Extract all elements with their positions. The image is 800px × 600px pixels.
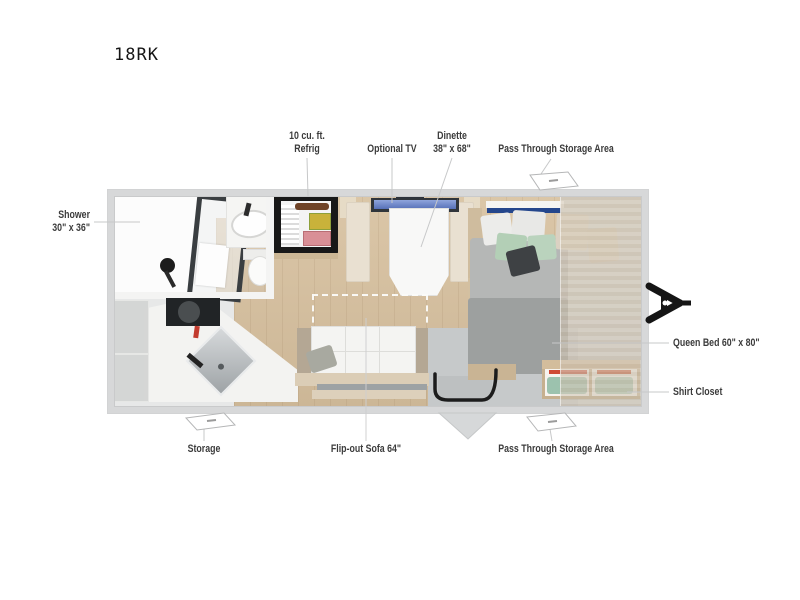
label-refrig: 10 cu. ft. Refrig xyxy=(259,130,355,155)
pass-through-door-icon-bottom xyxy=(527,413,576,431)
label-refrig-line2: Refrig xyxy=(259,143,355,156)
label-pass-through-top-text: Pass Through Storage Area xyxy=(492,143,620,156)
floorplan-diagram xyxy=(108,190,648,413)
label-pass-through-bottom: Pass Through Storage Area xyxy=(492,443,620,456)
trailer-hitch-icon xyxy=(649,286,691,320)
label-queen-bed-text: Queen Bed 60" x 80" xyxy=(673,337,769,350)
label-flip-out-sofa: Flip-out Sofa 64" xyxy=(318,443,414,456)
label-dinette-line1: Dinette xyxy=(404,130,500,143)
label-shirt-closet: Shirt Closet xyxy=(673,386,769,399)
label-queen-bed: Queen Bed 60" x 80" xyxy=(673,337,769,350)
leader-pass-through-bottom xyxy=(550,429,552,441)
label-shower: Shower 30" x 36" xyxy=(18,209,90,234)
label-dinette: Dinette 38" x 68" xyxy=(404,130,500,155)
label-refrig-line1: 10 cu. ft. xyxy=(259,130,355,143)
entry-step-icon xyxy=(439,413,496,439)
leader-pass-through-top xyxy=(541,159,551,174)
label-storage: Storage xyxy=(156,443,252,456)
storage-door-icon xyxy=(186,413,235,430)
label-storage-text: Storage xyxy=(156,443,252,456)
label-pass-through-bottom-text: Pass Through Storage Area xyxy=(492,443,620,456)
label-dinette-line2: 38" x 68" xyxy=(404,143,500,156)
label-shower-line2: 30" x 36" xyxy=(18,222,90,235)
label-flip-out-sofa-text: Flip-out Sofa 64" xyxy=(318,443,414,456)
label-shower-line1: Shower xyxy=(18,209,90,222)
label-shirt-closet-text: Shirt Closet xyxy=(673,386,769,399)
label-pass-through-top: Pass Through Storage Area xyxy=(492,143,620,156)
page-title: 18RK xyxy=(114,45,159,65)
pass-through-overlay xyxy=(560,192,645,411)
pass-through-door-icon-top xyxy=(530,172,578,190)
